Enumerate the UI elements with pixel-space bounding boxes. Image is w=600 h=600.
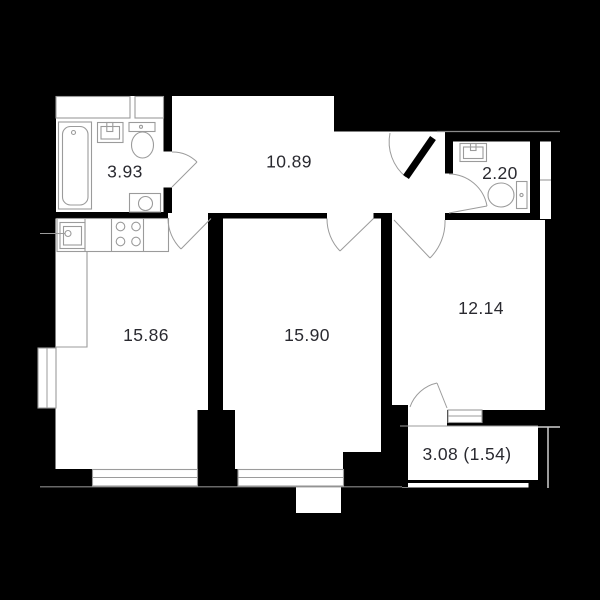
floor-plan-canvas: 3.93 10.89 2.20 15.86 15.90 12.14 3.08 (… bbox=[0, 0, 600, 600]
bathroom-door-opening bbox=[164, 152, 173, 188]
balcony-area-label: 3.08 (1.54) bbox=[422, 444, 511, 464]
kitchen-area-label: 15.86 bbox=[123, 325, 169, 345]
room-door-opening bbox=[392, 213, 445, 221]
balcony-railing bbox=[402, 483, 529, 488]
room-bathroom-floor bbox=[56, 96, 164, 212]
bathroom-area-label: 3.93 bbox=[107, 162, 143, 182]
bedroom-area-label: 15.90 bbox=[284, 325, 330, 345]
room-area-label: 12.14 bbox=[458, 298, 504, 318]
bedroom-door-opening bbox=[327, 213, 374, 219]
wall-pier bbox=[198, 410, 236, 470]
balcony-door-opening bbox=[408, 410, 447, 426]
hallway-area-label: 10.89 bbox=[266, 152, 312, 172]
kitchen-door-opening bbox=[168, 213, 208, 219]
wc-door-opening bbox=[445, 174, 454, 214]
floor-plan: 3.93 10.89 2.20 15.86 15.90 12.14 3.08 (… bbox=[0, 0, 600, 600]
wc-area-label: 2.20 bbox=[482, 163, 518, 183]
wall-pier bbox=[343, 452, 388, 488]
facade-block bbox=[296, 487, 341, 514]
